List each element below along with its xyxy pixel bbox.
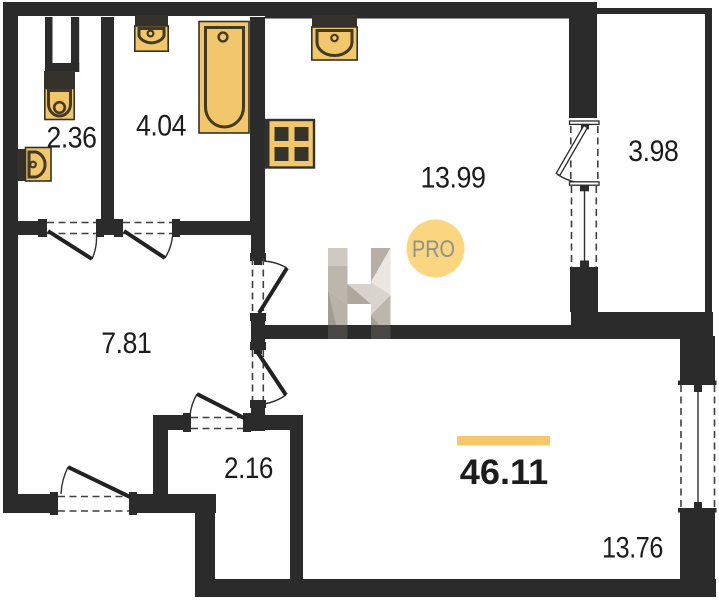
svg-text:13.99: 13.99 [421, 162, 486, 195]
svg-text:4.04: 4.04 [136, 110, 186, 143]
svg-text:2.36: 2.36 [47, 122, 97, 155]
svg-text:46.11: 46.11 [460, 453, 549, 492]
svg-text:13.76: 13.76 [602, 532, 663, 565]
svg-text:3.98: 3.98 [628, 135, 678, 168]
svg-text:7.81: 7.81 [101, 327, 151, 360]
svg-text:2.16: 2.16 [224, 452, 273, 485]
svg-text:PRO: PRO [412, 236, 455, 263]
